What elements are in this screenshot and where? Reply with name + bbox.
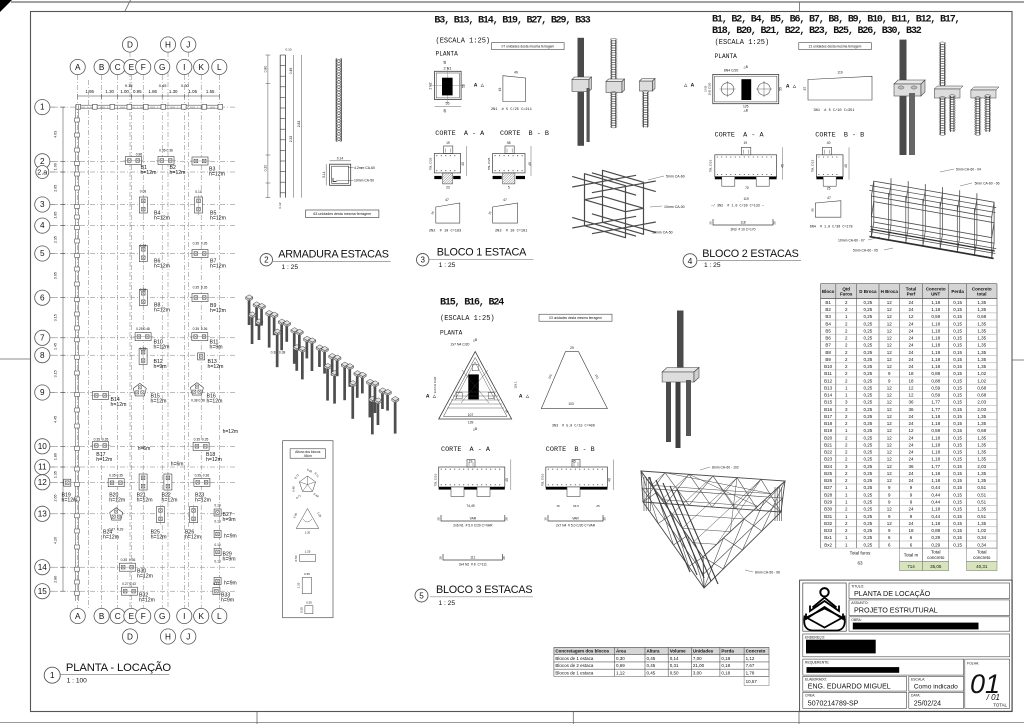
svg-text:47: 47 <box>503 198 507 202</box>
svg-text:Bx1: Bx1 <box>824 535 832 540</box>
svg-text:TBL C/15: TBL C/15 <box>709 159 713 172</box>
svg-text:40,31: 40,31 <box>976 564 988 569</box>
svg-text:714: 714 <box>907 564 915 569</box>
svg-text:0,25: 0,25 <box>864 350 873 355</box>
svg-text:1,12: 1,12 <box>746 656 755 661</box>
svg-text:B3, B13, B14, B19, B27, B29, B: B3, B13, B14, B19, B27, B29, B33 <box>434 16 590 27</box>
svg-text:h=12m: h=12m <box>162 498 178 504</box>
svg-text:H Broca: H Broca <box>881 289 899 294</box>
svg-text:h=12m: h=12m <box>109 498 125 504</box>
svg-text:h=9m: h=9m <box>223 557 236 563</box>
svg-text:B: B <box>99 612 105 621</box>
svg-text:A △: A △ <box>474 82 485 89</box>
svg-text:5mm CA-60: 5mm CA-60 <box>666 175 685 179</box>
svg-text:0,51: 0,51 <box>977 500 986 505</box>
svg-text:1,35: 1,35 <box>977 478 986 483</box>
svg-text:0,15: 0,15 <box>953 300 962 305</box>
svg-text:1.25: 1.25 <box>297 582 301 588</box>
svg-text:△B: △B <box>473 339 477 343</box>
svg-text:12: 12 <box>908 428 914 433</box>
svg-text:ARMADURA ESTACAS: ARMADURA ESTACAS <box>278 248 389 260</box>
svg-text:h=12m: h=12m <box>62 498 78 504</box>
svg-text:1.00: 1.00 <box>54 163 58 170</box>
svg-text:0.49: 0.49 <box>289 68 293 75</box>
svg-text:B7: B7 <box>825 343 831 348</box>
svg-text:1,18: 1,18 <box>931 328 940 333</box>
svg-text:0,59: 0,59 <box>931 428 940 433</box>
svg-text:70: 70 <box>745 186 749 190</box>
svg-text:1,35: 1,35 <box>977 357 986 362</box>
svg-text:0,88: 0,88 <box>931 378 940 383</box>
svg-text:0,25: 0,25 <box>864 393 873 398</box>
svg-text:0,15: 0,15 <box>953 457 962 462</box>
svg-text:J: J <box>186 40 190 49</box>
svg-text:0.27 0.43: 0.27 0.43 <box>122 582 136 586</box>
svg-text:2N2 # 10 C=183: 2N2 # 10 C=183 <box>429 229 461 233</box>
svg-text:G: G <box>159 612 165 621</box>
svg-text:B14: B14 <box>824 393 833 398</box>
svg-text:3.15: 3.15 <box>54 314 58 321</box>
svg-text:(ESCALA 1:25): (ESCALA 1:25) <box>440 315 495 323</box>
svg-text:0,18: 0,18 <box>721 663 730 668</box>
svg-text:24: 24 <box>908 300 914 305</box>
svg-text:1,77: 1,77 <box>931 464 940 469</box>
svg-text:TBL C/15: TBL C/15 <box>810 159 814 172</box>
svg-text:1,35: 1,35 <box>977 300 986 305</box>
svg-text:0,15: 0,15 <box>953 514 962 519</box>
svg-text:36: 36 <box>908 464 914 469</box>
svg-text:0,50: 0,50 <box>670 670 679 675</box>
svg-text:h=12m: h=12m <box>210 264 226 270</box>
svg-text:1,78: 1,78 <box>746 670 755 675</box>
svg-text:0,25: 0,25 <box>864 485 873 490</box>
svg-text:55: 55 <box>446 102 450 106</box>
svg-text:12: 12 <box>887 385 893 390</box>
svg-text:0,15: 0,15 <box>953 478 962 483</box>
svg-text:Total m: Total m <box>904 553 919 558</box>
svg-text:H: H <box>165 40 171 49</box>
svg-text:ENDEREÇO:: ENDEREÇO: <box>805 635 825 639</box>
svg-text:24: 24 <box>908 343 914 348</box>
svg-text:7,00: 7,00 <box>693 656 702 661</box>
svg-text:PLANTA DE LOCAÇÃO: PLANTA DE LOCAÇÃO <box>854 589 931 598</box>
svg-text:14: 14 <box>38 563 48 572</box>
svg-text:0.20: 0.20 <box>264 165 268 172</box>
svg-text:B16: B16 <box>824 407 833 412</box>
svg-text:45: 45 <box>781 164 785 168</box>
svg-text:4.20: 4.20 <box>54 537 58 544</box>
svg-text:B19: B19 <box>824 428 833 433</box>
svg-text:1.05: 1.05 <box>189 89 198 94</box>
svg-text:0,25: 0,25 <box>864 492 873 497</box>
svg-text:0,15: 0,15 <box>953 528 962 533</box>
svg-text:B18, B20, B21, B22, B23, B25,: B18, B20, B21, B22, B23, B25, B26, B30, … <box>712 26 922 37</box>
svg-text:D Broca: D Broca <box>859 289 877 294</box>
svg-text:0.08: 0.08 <box>140 288 147 292</box>
svg-text:0.30: 0.30 <box>181 83 190 88</box>
svg-text:B1, B2, B4, B5, B6, B7, B8, B9: B1, B2, B4, B5, B6, B7, B8, B9, B10, B11… <box>712 15 959 26</box>
svg-text:0,15: 0,15 <box>953 336 962 341</box>
svg-text:CORTE B - B: CORTE B - B <box>546 446 595 454</box>
svg-text:h=12m: h=12m <box>206 457 222 463</box>
svg-text:6N4 # 1.0 C/39 C=178: 6N4 # 1.0 C/39 C=178 <box>810 225 853 230</box>
svg-text:35,05: 35,05 <box>930 564 942 569</box>
svg-text:12: 12 <box>887 343 893 348</box>
svg-text:111: 111 <box>470 556 475 560</box>
svg-text:87: 87 <box>803 87 807 91</box>
svg-text:0.10: 0.10 <box>214 560 221 564</box>
svg-text:B25: B25 <box>824 471 833 476</box>
svg-text:26: 26 <box>709 221 713 225</box>
svg-text:0,25: 0,25 <box>864 314 873 319</box>
svg-text:0,15: 0,15 <box>953 350 962 355</box>
svg-text:1,35: 1,35 <box>977 328 986 333</box>
svg-text:8: 8 <box>40 351 45 360</box>
svg-text:12: 12 <box>908 385 914 390</box>
svg-text:9.15: 9.15 <box>125 83 134 88</box>
svg-text:0,15: 0,15 <box>953 471 962 476</box>
svg-text:Bloco: Bloco <box>822 289 835 294</box>
svg-text:2.a: 2.a <box>37 168 47 177</box>
svg-text:1.85: 1.85 <box>54 212 58 219</box>
svg-text:12: 12 <box>887 407 893 412</box>
svg-text:1,35: 1,35 <box>977 421 986 426</box>
svg-text:0.10: 0.10 <box>214 504 221 508</box>
svg-text:h=12m: h=12m <box>141 170 157 176</box>
svg-text:30: 30 <box>603 517 607 521</box>
svg-text:18: 18 <box>908 528 914 533</box>
svg-text:B1: B1 <box>825 300 831 305</box>
svg-text:0,59: 0,59 <box>931 393 940 398</box>
svg-text:Como indicado: Como indicado <box>914 683 958 690</box>
svg-text:Bx2: Bx2 <box>824 542 832 547</box>
svg-text:h=12m: h=12m <box>111 402 127 408</box>
svg-text:Perda: Perda <box>721 649 734 654</box>
svg-text:I: I <box>183 63 185 72</box>
svg-text:(ESCALA 1:25): (ESCALA 1:25) <box>436 38 491 46</box>
svg-text:CORTE A - A: CORTE A - A <box>715 131 765 139</box>
svg-text:h=9m: h=9m <box>224 581 237 587</box>
svg-text:25: 25 <box>596 504 600 508</box>
svg-text:3.65: 3.65 <box>54 272 58 279</box>
svg-text:1,18: 1,18 <box>931 450 940 455</box>
svg-text:9: 9 <box>40 388 45 397</box>
svg-text:0.50: 0.50 <box>294 555 298 561</box>
svg-text:h=12m: h=12m <box>170 170 186 176</box>
svg-text:1N2 C/20: 1N2 C/20 <box>708 82 712 95</box>
svg-text:13: 13 <box>38 509 48 518</box>
svg-text:B18: B18 <box>824 421 833 426</box>
svg-text:h=12m: h=12m <box>151 535 167 541</box>
svg-text:h=12m: h=12m <box>151 399 167 405</box>
svg-text:1,18: 1,18 <box>931 364 940 369</box>
svg-text:0,15: 0,15 <box>953 435 962 440</box>
svg-text:0,15: 0,15 <box>953 507 962 512</box>
svg-text:119: 119 <box>837 71 842 75</box>
svg-text:19: 19 <box>446 141 450 145</box>
svg-text:B23: B23 <box>824 457 833 462</box>
svg-text:B22: B22 <box>824 450 833 455</box>
svg-text:1.35: 1.35 <box>54 471 58 478</box>
svg-text:Blocos de 1 estaca: Blocos de 1 estaca <box>555 670 594 675</box>
svg-text:0,25: 0,25 <box>864 307 873 312</box>
svg-text:28: 28 <box>439 556 443 560</box>
svg-text:1.55: 1.55 <box>206 89 215 94</box>
svg-text:VAR: VAR <box>470 517 477 521</box>
svg-text:12: 12 <box>908 393 914 398</box>
svg-text:49: 49 <box>528 162 532 166</box>
svg-text:5mm CA-60 - 05: 5mm CA-60 - 05 <box>853 249 878 253</box>
svg-text:1 : 25: 1 : 25 <box>439 600 456 607</box>
svg-text:0,25: 0,25 <box>864 385 873 390</box>
svg-text:B9: B9 <box>825 357 831 362</box>
svg-text:0,68: 0,68 <box>977 385 986 390</box>
svg-text:0.08: 0.08 <box>140 244 147 248</box>
svg-text:0,29: 0,29 <box>931 535 940 540</box>
svg-text:B29: B29 <box>824 500 833 505</box>
svg-text:10mm CA-00: 10mm CA-00 <box>664 205 685 209</box>
svg-text:0,15: 0,15 <box>953 464 962 469</box>
svg-text:1,35: 1,35 <box>977 457 986 462</box>
svg-text:47: 47 <box>827 196 831 200</box>
svg-text:0,25: 0,25 <box>864 336 873 341</box>
svg-text:0,25: 0,25 <box>864 435 873 440</box>
svg-text:△B: △B <box>744 66 748 70</box>
svg-text:2,03: 2,03 <box>977 400 986 405</box>
svg-text:0.48: 0.48 <box>292 486 296 492</box>
svg-text:5: 5 <box>419 592 424 601</box>
svg-text:12: 12 <box>887 328 893 333</box>
svg-text:Área: Área <box>616 648 627 654</box>
svg-text:0.35 0.36: 0.35 0.36 <box>195 474 210 478</box>
svg-text:11: 11 <box>38 463 47 472</box>
svg-text:Blocos de 1 estaca: Blocos de 1 estaca <box>555 656 594 661</box>
svg-text:0,25: 0,25 <box>864 443 873 448</box>
svg-text:12: 12 <box>887 350 893 355</box>
svg-text:0,15: 0,15 <box>953 378 962 383</box>
svg-text:DATA:: DATA: <box>911 694 921 698</box>
svg-text:2.33: 2.33 <box>289 136 293 143</box>
svg-text:24: 24 <box>908 307 914 312</box>
svg-text:3: 3 <box>420 256 425 265</box>
svg-text:64.5: 64.5 <box>573 504 579 508</box>
svg-text:8mm CA-50 - 06: 8mm CA-50 - 06 <box>755 571 780 575</box>
svg-text:3 N3: 3 N3 <box>704 86 708 93</box>
svg-text:2N3 # 10 C=181: 2N3 # 10 C=181 <box>495 229 527 233</box>
svg-text:K: K <box>198 63 204 72</box>
svg-text:h=12m: h=12m <box>208 364 224 370</box>
svg-text:1,18: 1,18 <box>931 507 940 512</box>
svg-text:0.10: 0.10 <box>214 543 221 547</box>
svg-text:1: 1 <box>50 670 55 680</box>
svg-text:△B: △B <box>744 110 748 114</box>
svg-text:h=12m: h=12m <box>185 535 201 541</box>
svg-text:1,35: 1,35 <box>977 364 986 369</box>
svg-text:h=12m: h=12m <box>154 216 170 222</box>
svg-text:12: 12 <box>887 364 893 369</box>
svg-text:0,15: 0,15 <box>953 314 962 319</box>
svg-text:1.45: 1.45 <box>54 343 58 350</box>
svg-text:0,25: 0,25 <box>864 471 873 476</box>
svg-text:2: 2 <box>264 256 269 265</box>
svg-text:CORTE B - B: CORTE B - B <box>815 131 864 139</box>
svg-text:1,02: 1,02 <box>977 371 986 376</box>
svg-text:15: 15 <box>38 587 48 596</box>
svg-text:0,15: 0,15 <box>953 535 962 540</box>
svg-text:23: 23 <box>446 186 450 190</box>
svg-text:L: L <box>217 612 222 621</box>
svg-text:0,25: 0,25 <box>864 300 873 305</box>
svg-text:0.14: 0.14 <box>337 156 344 160</box>
svg-text:0,25: 0,25 <box>864 514 873 519</box>
svg-text:12: 12 <box>887 357 893 362</box>
svg-text:5mm CA-60 - 06: 5mm CA-60 - 06 <box>975 181 1000 185</box>
svg-text:1,18: 1,18 <box>931 350 940 355</box>
svg-text:h=12m: h=12m <box>103 535 119 541</box>
svg-text:0,15: 0,15 <box>953 321 962 326</box>
svg-text:ELABORADO:: ELABORADO: <box>805 678 827 682</box>
svg-text:0,15: 0,15 <box>953 364 962 369</box>
svg-text:45: 45 <box>505 478 509 482</box>
svg-text:15: 15 <box>556 504 560 508</box>
svg-text:2x6 N1 C/20: 2x6 N1 C/20 <box>433 376 437 393</box>
svg-text:28: 28 <box>437 517 441 521</box>
svg-text:10mm CA-50: 10mm CA-50 <box>354 179 374 183</box>
svg-text:3,00: 3,00 <box>693 670 702 675</box>
svg-text:0.10: 0.10 <box>195 190 202 194</box>
svg-text:0,25: 0,25 <box>864 421 873 426</box>
svg-text:24: 24 <box>908 364 914 369</box>
svg-text:12: 12 <box>887 471 893 476</box>
svg-text:0.37 0.29: 0.37 0.29 <box>109 528 124 532</box>
svg-text:0.45: 0.45 <box>159 83 168 88</box>
svg-text:B28: B28 <box>824 492 833 497</box>
svg-text:12: 12 <box>887 421 893 426</box>
svg-text:0.35 0.35: 0.35 0.35 <box>193 242 208 246</box>
svg-text:E: E <box>129 63 135 72</box>
svg-text:12: 12 <box>887 314 893 319</box>
svg-text:TBL C/16: TBL C/16 <box>541 473 545 486</box>
svg-text:21 unidades desta mesma ferrag: 21 unidades desta mesma ferragem <box>809 44 862 48</box>
svg-text:h=6m: h=6m <box>138 446 151 452</box>
svg-text:h=12m: h=12m <box>210 216 226 222</box>
svg-text:1,18: 1,18 <box>931 478 940 483</box>
svg-text:7: 7 <box>40 333 45 342</box>
svg-text:B33: B33 <box>824 528 833 533</box>
svg-text:0,15: 0,15 <box>953 307 962 312</box>
svg-text:0,51: 0,51 <box>977 514 986 519</box>
svg-text:1.95: 1.95 <box>85 89 94 94</box>
svg-text:0,25: 0,25 <box>864 357 873 362</box>
svg-text:2.80: 2.80 <box>54 576 58 583</box>
svg-text:3.15: 3.15 <box>54 370 58 377</box>
svg-text:29: 29 <box>570 346 574 350</box>
svg-text:B3: B3 <box>825 314 831 319</box>
svg-text:07 unidades desta mesma ferrag: 07 unidades desta mesma ferragem <box>502 44 555 48</box>
svg-text:12: 12 <box>887 435 893 440</box>
svg-text:7,67: 7,67 <box>746 663 755 668</box>
svg-text:Furos: Furos <box>840 291 853 296</box>
svg-text:10mm CA-60 - 07: 10mm CA-60 - 07 <box>838 238 865 242</box>
svg-text:55: 55 <box>461 84 465 88</box>
svg-text:1.00: 1.00 <box>120 89 129 94</box>
svg-text:A △: A △ <box>426 393 437 400</box>
svg-text:4.63: 4.63 <box>54 131 58 138</box>
svg-text:L: L <box>217 63 222 72</box>
svg-text:0,51: 0,51 <box>977 485 986 490</box>
svg-text:74,49: 74,49 <box>466 504 474 508</box>
svg-text:1,35: 1,35 <box>977 507 986 512</box>
svg-text:Blocos de 2 estaca: Blocos de 2 estaca <box>555 663 594 668</box>
svg-text:Perda: Perda <box>951 289 964 294</box>
svg-text:0,14: 0,14 <box>670 656 679 661</box>
svg-text:12: 12 <box>887 393 893 398</box>
svg-text:30: 30 <box>544 517 548 521</box>
svg-text:B32: B32 <box>824 521 833 526</box>
svg-text:A △: A △ <box>519 393 530 400</box>
svg-text:1,02: 1,02 <box>977 528 986 533</box>
svg-text:1,35: 1,35 <box>977 321 986 326</box>
svg-text:0,44: 0,44 <box>931 485 940 490</box>
svg-text:B15, B16, B24: B15, B16, B24 <box>440 298 504 309</box>
svg-text:0,25: 0,25 <box>864 328 873 333</box>
svg-text:24: 24 <box>908 328 914 333</box>
svg-text:0,25: 0,25 <box>864 478 873 483</box>
svg-text:12: 12 <box>887 428 893 433</box>
svg-text:1,12: 1,12 <box>616 670 625 675</box>
svg-text:0,68: 0,68 <box>977 393 986 398</box>
svg-text:12: 12 <box>887 457 893 462</box>
svg-text:A: A <box>75 612 81 621</box>
svg-text:CORTE A - A: CORTE A - A <box>441 446 491 454</box>
svg-text:49: 49 <box>498 88 502 92</box>
svg-text:B27: B27 <box>824 485 833 490</box>
svg-text:D: D <box>127 632 133 641</box>
svg-text:19: 19 <box>469 460 473 464</box>
svg-text:OBRA:: OBRA: <box>851 618 862 622</box>
svg-text:24: 24 <box>908 435 914 440</box>
svg-text:0,25: 0,25 <box>864 414 873 419</box>
svg-text:55: 55 <box>507 141 511 145</box>
svg-text:BLOCO 3 ESTACAS: BLOCO 3 ESTACAS <box>436 584 532 596</box>
svg-text:Volume: Volume <box>670 649 686 654</box>
svg-text:TBL C/25: TBL C/25 <box>487 157 491 170</box>
svg-text:2: 2 <box>40 157 45 166</box>
svg-text:h=12m: h=12m <box>154 264 170 270</box>
svg-text:0,88: 0,88 <box>931 528 940 533</box>
svg-text:h=12m: h=12m <box>195 498 211 504</box>
svg-text:B5: B5 <box>825 328 831 333</box>
svg-text:25: 25 <box>827 187 831 191</box>
svg-text:B8: B8 <box>825 350 831 355</box>
svg-text:3N3 # 10 C=170: 3N3 # 10 C=170 <box>730 228 755 232</box>
svg-text:FOLHA:: FOLHA: <box>967 661 979 665</box>
svg-text:36: 36 <box>908 407 914 412</box>
svg-text:1 : 100: 1 : 100 <box>67 677 87 684</box>
svg-text:24: 24 <box>908 478 914 483</box>
svg-text:0,25: 0,25 <box>864 535 873 540</box>
svg-text:0,25: 0,25 <box>864 371 873 376</box>
svg-text:12: 12 <box>887 336 893 341</box>
svg-text:PROJETO ESTRUTURAL: PROJETO ESTRUTURAL <box>854 606 938 615</box>
svg-text:2.35: 2.35 <box>54 236 58 243</box>
svg-text:0,25: 0,25 <box>864 507 873 512</box>
svg-text:0.35 0.35: 0.35 0.35 <box>194 437 209 441</box>
svg-text:C: C <box>115 612 121 621</box>
svg-text:0,18: 0,18 <box>721 670 730 675</box>
svg-text:0,30: 0,30 <box>616 656 625 661</box>
svg-text:Unidades: Unidades <box>693 649 714 654</box>
